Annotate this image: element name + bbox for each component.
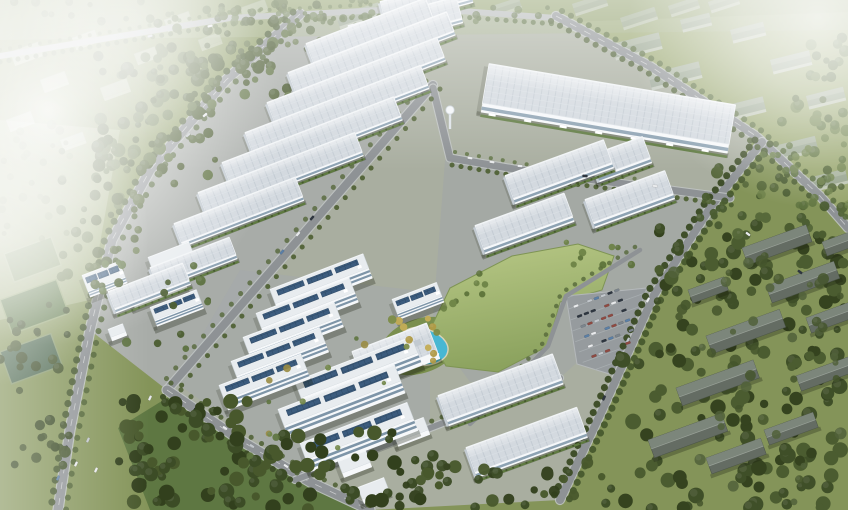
tree-highlight <box>444 477 449 482</box>
tree <box>710 209 718 217</box>
tree <box>269 445 280 456</box>
tree <box>581 457 593 469</box>
tree-highlight <box>153 498 157 502</box>
tree <box>213 407 222 416</box>
tree <box>666 343 676 353</box>
tree <box>677 304 688 315</box>
tree <box>747 286 757 296</box>
tree <box>154 340 162 348</box>
tree <box>686 324 698 336</box>
tree-highlight <box>738 212 743 217</box>
tree <box>314 433 326 445</box>
tree-highlight <box>759 415 764 420</box>
tree <box>404 344 410 350</box>
tree-highlight <box>797 214 802 219</box>
tree <box>718 423 725 430</box>
tree <box>367 450 378 461</box>
tree-highlight <box>431 351 435 355</box>
tree-highlight <box>803 476 810 483</box>
car <box>652 184 657 187</box>
tree <box>830 353 838 361</box>
tree <box>229 409 244 424</box>
tree <box>740 414 751 425</box>
tree <box>791 499 798 506</box>
tree <box>247 452 254 459</box>
tree-highlight <box>386 436 390 440</box>
tree <box>735 405 743 413</box>
tree <box>486 494 499 507</box>
tree-highlight <box>268 432 271 435</box>
tree <box>824 451 838 465</box>
tree <box>238 457 249 468</box>
tree <box>409 490 422 503</box>
tree <box>813 231 820 238</box>
tree-highlight <box>783 387 788 392</box>
tree <box>755 212 764 221</box>
tree <box>449 460 462 473</box>
tree-highlight <box>271 480 278 487</box>
tree-highlight <box>522 501 526 505</box>
tree <box>223 394 238 409</box>
tree <box>541 468 553 480</box>
tree <box>388 315 397 324</box>
tree <box>367 426 382 441</box>
tree <box>697 368 706 377</box>
car-body <box>652 184 657 187</box>
tree-highlight <box>655 298 659 302</box>
tree-highlight <box>406 337 410 341</box>
tree <box>801 305 812 316</box>
tree-highlight <box>616 353 624 361</box>
tree <box>464 291 469 296</box>
tree-highlight <box>737 231 740 234</box>
tree <box>203 398 212 407</box>
tree-highlight <box>819 323 824 328</box>
tree <box>272 434 279 441</box>
tree <box>229 472 244 487</box>
car-body <box>582 174 587 177</box>
tree-highlight <box>719 259 724 264</box>
tree-highlight <box>162 399 166 403</box>
tree <box>283 364 291 372</box>
tree <box>655 384 667 396</box>
tree <box>569 490 579 500</box>
tree <box>159 485 175 501</box>
tree <box>730 355 742 367</box>
tree-highlight <box>745 502 752 509</box>
tree <box>396 493 404 501</box>
tree-highlight <box>422 461 428 467</box>
tree <box>745 370 756 381</box>
tree <box>801 463 807 469</box>
tree-highlight <box>696 455 702 461</box>
tree <box>754 482 765 493</box>
tree <box>204 298 211 305</box>
tree-highlight <box>675 246 680 251</box>
tree <box>702 193 710 201</box>
tree <box>668 267 680 279</box>
tree-highlight <box>477 271 480 274</box>
tree-highlight <box>326 365 329 368</box>
tree <box>559 475 568 484</box>
tree-highlight <box>783 500 788 505</box>
tree <box>435 471 444 480</box>
tree-highlight <box>775 275 780 280</box>
tree-highlight <box>761 267 768 274</box>
tree <box>760 400 768 408</box>
tree <box>361 341 369 349</box>
tree-highlight <box>720 205 724 209</box>
tree <box>449 300 457 308</box>
tree <box>155 410 167 422</box>
tree-highlight <box>167 458 172 463</box>
tree <box>655 265 664 274</box>
tree <box>756 255 768 267</box>
tree <box>625 414 641 430</box>
tree-highlight <box>779 489 784 494</box>
tree-highlight <box>346 496 351 501</box>
tree <box>433 329 440 336</box>
tree-highlight <box>276 470 282 476</box>
tree-highlight <box>608 485 612 489</box>
tree-highlight <box>412 457 416 461</box>
tree-highlight <box>823 482 829 488</box>
tree <box>291 429 306 444</box>
tree <box>283 493 294 504</box>
tree-highlight <box>692 347 697 352</box>
tree <box>635 467 646 478</box>
tree <box>425 344 432 351</box>
tree <box>712 305 722 315</box>
tree-highlight <box>808 282 811 285</box>
tree-highlight <box>690 489 698 497</box>
tree <box>252 492 260 500</box>
tree-highlight <box>629 262 633 266</box>
tree <box>673 470 687 484</box>
tree-highlight <box>647 504 653 510</box>
tree <box>531 486 538 493</box>
tree-highlight <box>823 388 829 394</box>
tree <box>289 460 302 473</box>
tree <box>303 487 317 501</box>
aerial-rendering-viewport <box>0 0 848 510</box>
tree <box>618 494 633 509</box>
car <box>582 174 587 177</box>
tree <box>722 232 732 242</box>
tree <box>216 432 225 441</box>
tree <box>782 404 793 415</box>
tree <box>799 255 813 269</box>
tree-highlight <box>836 428 842 434</box>
tree <box>766 283 775 292</box>
tree-highlight <box>697 214 701 218</box>
tree-highlight <box>752 220 758 226</box>
tree <box>772 430 781 439</box>
tree-highlight <box>336 445 339 448</box>
tree <box>540 490 548 498</box>
tree <box>672 354 686 368</box>
left-haze-veil <box>0 0 150 510</box>
tree <box>599 261 606 268</box>
tree-highlight <box>203 424 210 431</box>
tree <box>354 336 359 341</box>
tree <box>503 494 514 505</box>
tree-highlight <box>236 498 242 504</box>
tree <box>824 468 839 483</box>
tree-highlight <box>474 281 477 284</box>
tree <box>435 481 443 489</box>
tree <box>609 244 616 251</box>
tree <box>787 362 796 371</box>
tree-highlight <box>438 461 444 467</box>
tree-highlight <box>220 485 228 493</box>
tree <box>549 486 560 497</box>
tree <box>705 257 719 271</box>
tree <box>183 345 190 352</box>
tree <box>598 473 605 480</box>
tree <box>266 400 271 405</box>
tree-highlight <box>225 496 231 502</box>
tree-highlight <box>742 432 750 440</box>
tree <box>776 465 789 478</box>
tree-highlight <box>744 258 749 263</box>
tree <box>655 350 664 359</box>
tree-highlight <box>799 326 803 330</box>
tree <box>189 430 200 441</box>
tree-highlight <box>736 473 742 479</box>
tree <box>833 375 840 382</box>
tree <box>684 251 692 259</box>
tree-highlight <box>673 287 678 292</box>
tree <box>443 463 450 470</box>
tree-highlight <box>564 240 567 243</box>
tree <box>714 221 722 229</box>
tree <box>707 348 716 357</box>
tree <box>266 377 273 384</box>
tree <box>661 473 676 488</box>
tree <box>748 316 758 326</box>
tree <box>697 500 703 506</box>
tree <box>318 461 330 473</box>
tree-highlight <box>602 499 607 504</box>
tree-highlight <box>493 468 499 474</box>
tree-highlight <box>341 484 346 489</box>
tree-highlight <box>616 245 619 248</box>
tree-highlight <box>430 324 434 328</box>
tree <box>730 329 736 335</box>
tree-highlight <box>190 411 196 417</box>
tree <box>305 442 316 453</box>
tree <box>230 431 245 446</box>
tree <box>281 438 293 450</box>
industrial-park-aerial-rendering <box>0 0 848 510</box>
tree <box>798 292 806 300</box>
tree <box>579 249 587 257</box>
tree <box>403 482 410 489</box>
tree-highlight <box>796 476 800 480</box>
tree <box>750 345 759 354</box>
tree <box>578 255 583 260</box>
tree-highlight <box>160 463 166 469</box>
tree-highlight <box>655 410 661 416</box>
tree <box>242 396 253 407</box>
tree <box>425 316 431 322</box>
tree <box>715 411 726 422</box>
tree <box>728 481 739 492</box>
tree <box>479 291 485 297</box>
tree <box>207 487 215 495</box>
tree <box>400 323 408 331</box>
tree-highlight <box>178 331 182 335</box>
tree-highlight <box>431 358 434 361</box>
tree <box>482 281 489 288</box>
tree-highlight <box>722 277 727 282</box>
tree <box>167 437 181 451</box>
tree-highlight <box>428 451 434 457</box>
tree-highlight <box>171 403 177 409</box>
tree <box>178 423 188 433</box>
tree <box>749 274 761 286</box>
tree <box>478 464 490 476</box>
tree-highlight <box>384 489 389 494</box>
tree-highlight <box>634 359 640 365</box>
tree-highlight <box>656 224 661 229</box>
tree-highlight <box>726 270 729 273</box>
tree <box>652 306 659 313</box>
tree <box>726 413 740 427</box>
tree <box>441 305 447 311</box>
tree <box>806 448 817 459</box>
tree-highlight <box>475 476 479 480</box>
tree-highlight <box>300 399 303 402</box>
tree-highlight <box>699 344 703 348</box>
tree <box>416 475 426 485</box>
tree <box>741 381 752 392</box>
tree <box>790 376 797 383</box>
tree <box>396 468 404 476</box>
tree-highlight <box>566 470 570 474</box>
tree-highlight <box>697 275 702 280</box>
tree <box>374 493 389 508</box>
tree <box>353 427 364 438</box>
tree <box>387 455 402 470</box>
tree <box>818 273 829 284</box>
tree <box>805 351 814 360</box>
tree-highlight <box>250 478 255 483</box>
tree <box>315 445 328 458</box>
tree <box>837 293 844 300</box>
tree-highlight <box>279 431 285 437</box>
tree <box>787 333 797 343</box>
tree <box>571 261 577 267</box>
tree <box>220 467 229 476</box>
tree-highlight <box>471 503 476 508</box>
tree <box>351 453 359 461</box>
tree-highlight <box>813 318 818 323</box>
tree-highlight <box>382 381 384 383</box>
